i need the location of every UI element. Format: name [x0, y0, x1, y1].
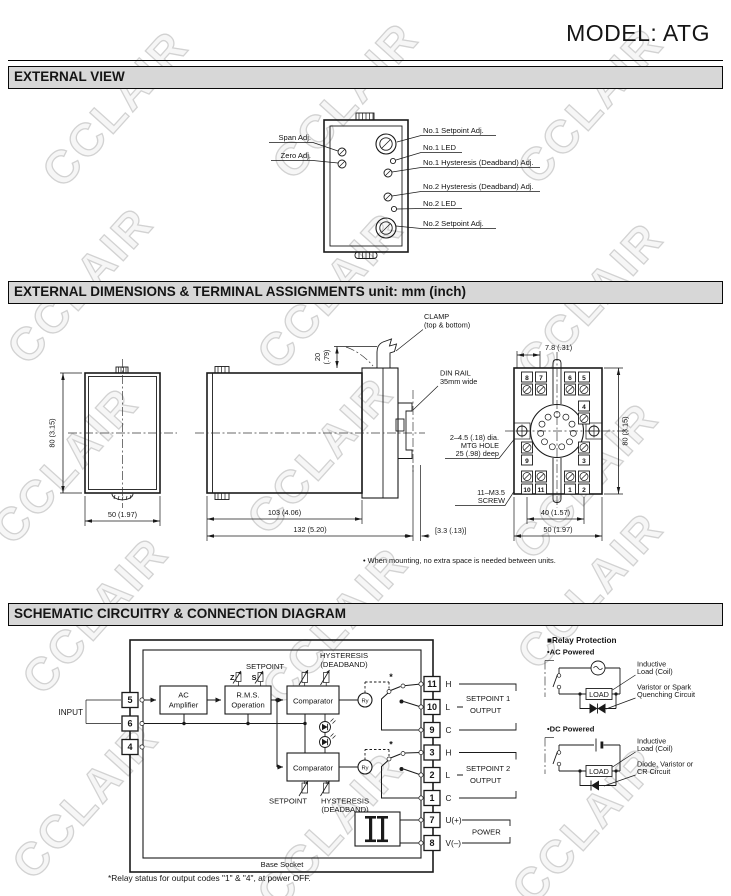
- terminal-4: 4: [582, 404, 586, 411]
- trimmers: Z S SETPOINT HYSTERESIS (DEADBAND) SETPO…: [230, 651, 369, 814]
- comparator1-label: Comparator: [293, 697, 334, 706]
- no1-led: [390, 158, 395, 163]
- terminal-6: 6: [568, 375, 572, 382]
- section-title: EXTERNAL VIEW: [14, 69, 125, 84]
- terminal-7: 7: [429, 815, 434, 825]
- relay-protection-title: ■Relay Protection: [547, 636, 617, 645]
- section-header-dimensions: EXTERNAL DIMENSIONS & TERMINAL ASSIGNMEN…: [8, 281, 723, 304]
- header-divider: [8, 60, 723, 61]
- no2-hysteresis-label: No.2 Hysteresis (Deadband) Adj.: [423, 182, 534, 191]
- load-label: LOAD: [589, 690, 609, 699]
- terminal-1: 1: [429, 793, 434, 803]
- terminal-5: 5: [582, 375, 586, 382]
- device-front-panel: [324, 113, 408, 259]
- external-view-drawing: Span Adj. Zero Adj. No.1 Setpoint Adj. N…: [0, 96, 731, 272]
- power-label: POWER: [472, 828, 501, 837]
- setpoint2-output-label2: OUTPUT: [470, 776, 502, 785]
- terminal-4: 4: [127, 742, 132, 752]
- relay2-label: Ry: [361, 766, 368, 772]
- rms-label1: R.M.S.: [236, 691, 259, 700]
- no2-led: [391, 206, 396, 211]
- datasheet-page: CCLAIR CCLAIR CCLAIR CCLAIR CCLAIR CCLAI…: [0, 0, 731, 896]
- no2-hysteresis-screw: [384, 193, 392, 201]
- zero-adj-label: Zero Adj.: [281, 151, 311, 160]
- hysteresis1-label2: (DEADBAND): [320, 660, 368, 669]
- setpoint1-trimmer-label: SETPOINT: [246, 662, 284, 671]
- total-length-dim: 132 (5.20): [293, 525, 326, 534]
- relay-status-footnote: *Relay status for output codes "1" & "4"…: [108, 873, 311, 883]
- socket-width-inner-dim: 40 (1.57): [541, 508, 570, 517]
- no2-led-label: No.2 LED: [423, 199, 456, 208]
- mtg-hole-label3: 25 (.98) deep: [456, 449, 499, 458]
- terminal-8: 8: [525, 375, 529, 382]
- setpoint1-output-label2: OUTPUT: [470, 706, 502, 715]
- body-length-dim: 103 (4.06): [268, 508, 301, 517]
- no2-setpoint-knob: [376, 218, 396, 238]
- hysteresis1-label1: HYSTERESIS: [320, 651, 368, 660]
- terminal-11: 11: [427, 679, 437, 689]
- base-socket-label: Base Socket: [261, 860, 305, 869]
- comparator2-label: Comparator: [293, 764, 334, 773]
- terminal-10: 10: [427, 702, 437, 712]
- dc-powered-title: •DC Powered: [547, 725, 595, 734]
- setpoint2-output-label1: SETPOINT 2: [466, 764, 510, 773]
- mounting-note: • When mounting, no extra space is neede…: [363, 556, 556, 565]
- front-height-dim: 80 (3.15): [48, 418, 57, 447]
- front-width-dim: 50 (1.97): [108, 510, 137, 519]
- terminal-7: 7: [539, 375, 543, 382]
- zero-trimmer-label: Z: [230, 673, 235, 682]
- power-supply: [355, 812, 423, 846]
- socket-top-dim: 7.8 (.31): [545, 343, 572, 352]
- relay-switch-1: *: [365, 672, 423, 732]
- terminal-7-letter: U(+): [446, 816, 462, 825]
- diode-label2: CR Circuit: [637, 767, 670, 776]
- clamp-label2: (top & bottom): [424, 321, 470, 330]
- rms-label2: Operation: [231, 701, 264, 710]
- no2-setpoint-label: No.2 Setpoint Adj.: [423, 219, 484, 228]
- dc-powered-circuit: LOAD Inductive Load (Coil) Diode, Varist…: [545, 737, 694, 791]
- no1-hysteresis-screw: [384, 169, 392, 177]
- terminal-9-letter: C: [446, 726, 452, 735]
- inductive-load-label2: Load (Coil): [637, 667, 673, 676]
- terminal-2: 2: [429, 770, 434, 780]
- socket-width-outer-dim: 50 (1.97): [543, 525, 572, 534]
- ac-powered-circuit: LOAD Inductive Load (Coil) Varistor or S…: [545, 660, 695, 714]
- relay-switch-2: *: [365, 740, 423, 801]
- load-label: LOAD: [589, 767, 609, 776]
- terminal-9: 9: [429, 725, 434, 735]
- star-mark: *: [389, 740, 393, 750]
- terminal-5: 5: [127, 695, 132, 705]
- terminal-1: 1: [568, 487, 572, 494]
- span-trimmer-label: S: [252, 673, 257, 682]
- terminal-9: 9: [525, 458, 529, 465]
- inductive-load-label2: Load (Coil): [637, 744, 673, 753]
- no1-hysteresis-label: No.1 Hysteresis (Deadband) Adj.: [423, 158, 534, 167]
- dimensions-drawing: 80 (3.15) 50 (1.97) 20 (.79) CLAMP: [0, 306, 731, 572]
- section-title: EXTERNAL DIMENSIONS & TERMINAL ASSIGNMEN…: [14, 284, 466, 299]
- ac-powered-title: •AC Powered: [547, 648, 595, 657]
- terminal-10-letter: L: [446, 703, 451, 712]
- ac-amplifier-label1: AC: [178, 691, 189, 700]
- setpoint1-output-label1: SETPOINT 1: [466, 694, 510, 703]
- terminal-11: 11: [538, 487, 545, 494]
- varistor-label2: Quenching Circuit: [637, 690, 695, 699]
- input-terminals: INPUT 5 6 4: [58, 693, 144, 755]
- span-adj-label: Span Adj.: [278, 133, 311, 142]
- socket-height-dim: 80 (3.15): [621, 416, 630, 445]
- no1-setpoint-knob: [376, 134, 396, 154]
- no1-led-label: No.1 LED: [423, 143, 456, 152]
- terminal-11-letter: H: [446, 680, 452, 689]
- page-title: MODEL: ATG: [380, 20, 710, 47]
- led-indicators: [320, 714, 336, 753]
- terminal-3: 3: [582, 458, 586, 465]
- screw-label2: SCREW: [478, 496, 505, 505]
- terminal-1-letter: C: [446, 794, 452, 803]
- zero-adj-screw: [338, 160, 346, 168]
- section-title: SCHEMATIC CIRCUITRY & CONNECTION DIAGRAM: [14, 606, 346, 621]
- side-view: 20 (.79) CLAMP (top & bottom) DIN RAIL 3…: [195, 312, 522, 541]
- terminal-8: 8: [429, 838, 434, 848]
- terminal-3: 3: [429, 748, 434, 758]
- clamp: [377, 339, 397, 368]
- no1-setpoint-label: No.1 Setpoint Adj.: [423, 126, 484, 135]
- section-header-external-view: EXTERNAL VIEW: [8, 66, 723, 89]
- terminal-8-letter: V(–): [446, 839, 462, 848]
- section-header-schematic: SCHEMATIC CIRCUITRY & CONNECTION DIAGRAM: [8, 603, 723, 626]
- schematic-drawing: Base Socket INPUT 5 6 4 AC Amplifier R.M…: [0, 626, 731, 896]
- external-view-labels: Span Adj. Zero Adj. No.1 Setpoint Adj. N…: [269, 126, 540, 229]
- terminal-3-letter: H: [446, 748, 452, 757]
- star-mark: *: [389, 672, 393, 682]
- output-terminals: 11 10 9 3 2 1 7 8 H L C H L C U(+) V(–) …: [424, 677, 516, 851]
- ac-amplifier-label2: Amplifier: [169, 701, 199, 710]
- relay-protection: ■Relay Protection •AC Powered LOAD Induc…: [545, 636, 695, 791]
- clamp-height-dim-inch: (.79): [322, 349, 331, 364]
- terminal-2: 2: [582, 487, 586, 494]
- signal-path: AC Amplifier R.M.S. Operation Comparator…: [144, 686, 372, 781]
- socket-view: 8 7 6 5 4 9 3: [505, 343, 630, 541]
- relay1-label: Ry: [361, 699, 368, 705]
- input-label: INPUT: [58, 708, 83, 717]
- din-rail-label2: 35mm wide: [440, 377, 477, 386]
- terminal-2-letter: L: [446, 771, 451, 780]
- front-view: 80 (3.15) 50 (1.97): [48, 359, 178, 526]
- setpoint2-trimmer-label: SETPOINT: [269, 797, 307, 806]
- span-adj-screw: [338, 148, 346, 156]
- rail-offset-dim: [3.3 (.13)]: [435, 526, 466, 535]
- terminal-10: 10: [523, 487, 531, 494]
- clamp-height-dim: 20: [313, 353, 322, 361]
- terminal-6: 6: [127, 719, 132, 729]
